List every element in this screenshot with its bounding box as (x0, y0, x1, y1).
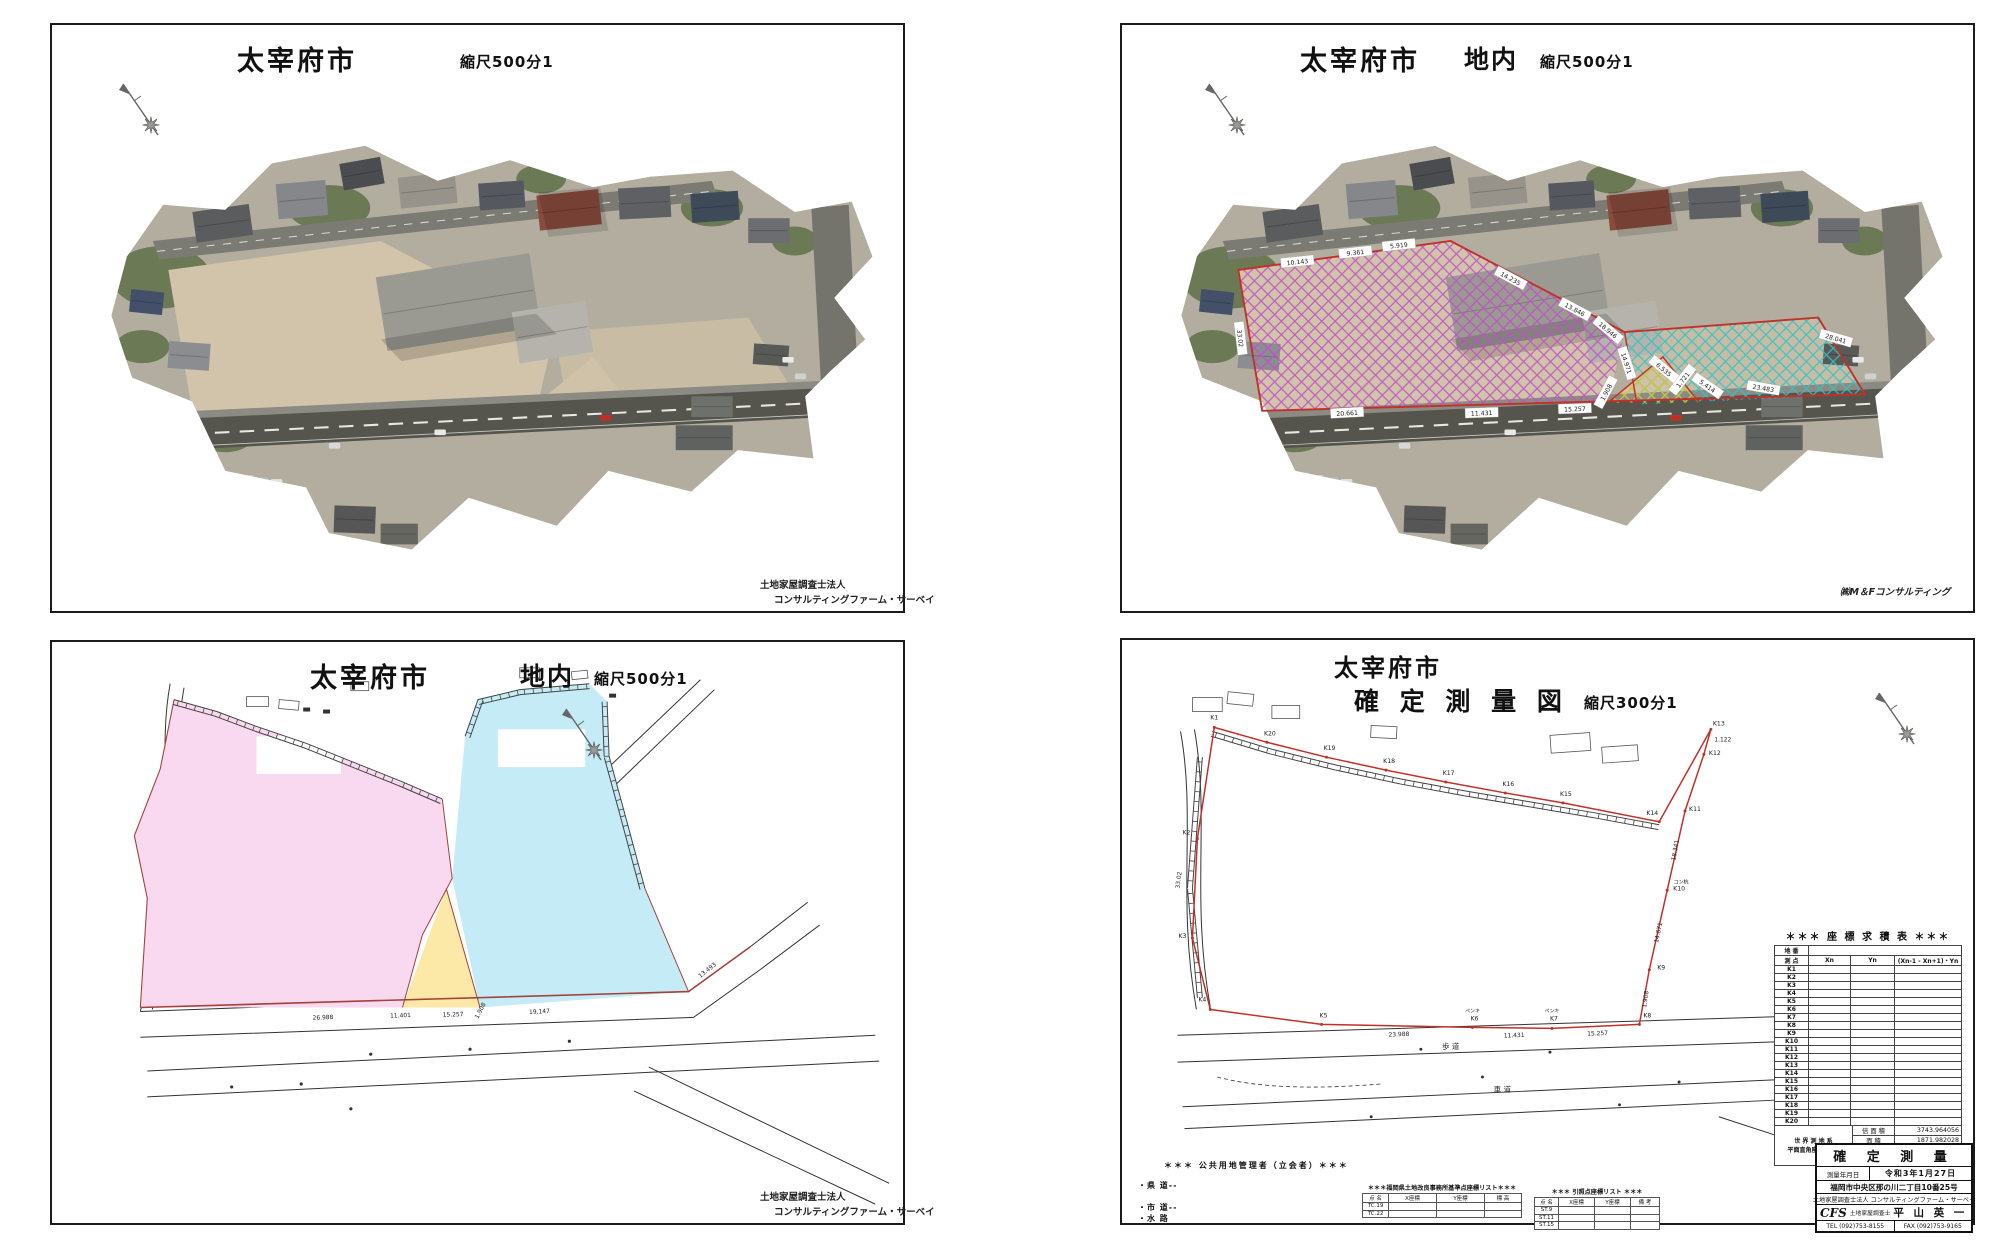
ref-value-cell (1485, 1203, 1522, 1211)
point-id-cell: K15 (1775, 1078, 1809, 1086)
summary-label: 倍 面 積 (1853, 1126, 1895, 1136)
point-id-cell: K5 (1775, 998, 1809, 1006)
panel2-title: 太宰府市 (1300, 39, 1420, 78)
survey-sheet-page: 太宰府市 縮尺500分1 土地家屋調査士法人 コンサルティングファーム・サーベイ… (0, 0, 2000, 1240)
panel4-title: 太宰府市 (1334, 648, 1442, 683)
coord-value-cell (1851, 1006, 1895, 1014)
survey-point-label: K19 (1324, 745, 1336, 752)
coord-value-cell (1809, 966, 1851, 974)
survey-date-value: 令和3年1月27日 (1870, 1167, 1971, 1180)
ref-value-cell (1437, 1210, 1485, 1218)
point-id-cell: K6 (1775, 1006, 1809, 1014)
ref-value-cell (1559, 1214, 1595, 1222)
coord-value-cell (1809, 982, 1851, 990)
coordinate-table: ＊＊＊ 座 標 求 積 表 ＊＊＊ 地 番 測 点 Xn Yn (Xn-1 - … (1774, 928, 1962, 1166)
survey-point-label: K6 (1471, 1015, 1479, 1022)
measurement-text: 1.122 (1714, 736, 1731, 743)
ref-value-cell (1485, 1210, 1522, 1218)
coord-value-cell (1809, 1086, 1851, 1094)
survey-point-label: K10 (1673, 885, 1685, 892)
road-name-label: 歩 道 (1442, 1041, 1460, 1051)
parcel-measurement-label: 20.661 (1330, 407, 1364, 419)
office-company: 土地家屋調査士法人 コンサルティングファーム・サーベイ (1817, 1194, 1971, 1205)
point-id-cell: K14 (1775, 1070, 1809, 1078)
panel-aerial-plain: 太宰府市 縮尺500分1 土地家屋調査士法人 コンサルティングファーム・サーベイ (50, 23, 905, 613)
coord-value-cell (1895, 1030, 1962, 1038)
surveyor-name: 平 山 英 一 (1893, 1205, 1967, 1220)
coord-value-cell (1809, 1062, 1851, 1070)
road-name-label: 車 道 (1494, 1084, 1512, 1094)
coord-value-cell (1851, 1022, 1895, 1030)
cfs-logo: CFS (1820, 1206, 1847, 1220)
legend-item-shido: ・市 道-- (1138, 1202, 1177, 1213)
measurement-text: 11.431 (1504, 1032, 1525, 1040)
survey-point-label: K3 (1179, 933, 1187, 940)
coord-value-cell (1851, 1062, 1895, 1070)
coord-table-row: K2 (1775, 974, 1962, 982)
coord-value-cell (1895, 1062, 1962, 1070)
point-id-cell: K13 (1775, 1062, 1809, 1070)
coord-value-cell (1895, 1110, 1962, 1118)
coord-table-row: K11 (1775, 1046, 1962, 1054)
panel3-subtitle: 地内 (520, 657, 574, 693)
coord-value-cell (1809, 990, 1851, 998)
benchmark-list-table: ＊＊＊福岡県土地改良事務所基準点座標リスト＊＊＊ 点 名X座標Y座標標 高TC.… (1362, 1183, 1522, 1218)
coord-value-cell (1895, 1038, 1962, 1046)
coord-value-cell (1851, 1070, 1895, 1078)
survey-point-label: K5 (1320, 1012, 1328, 1019)
north-arrow-icon (557, 702, 609, 766)
ref-table-header: 点 名X座標Y座標備 考 (1535, 1198, 1660, 1207)
summary-row: 世 界 測 地 系平面直角座標系Ⅱ系倍 面 積3743.964056 (1775, 1126, 1962, 1136)
ref-value-cell (1595, 1214, 1631, 1222)
survey-title-block: 確 定 測 量 測量年月日 令和3年1月27日 福岡市中央区那の川二丁目10番2… (1815, 1143, 1973, 1233)
coord-value-cell (1851, 974, 1895, 982)
coord-value-cell (1851, 966, 1895, 974)
coord-value-cell (1895, 974, 1962, 982)
marker-type-label: コン杭 (1674, 878, 1689, 885)
title-block-heading: 確 定 測 量 (1817, 1145, 1971, 1167)
coord-value-cell (1851, 1086, 1895, 1094)
ref-col-header: 標 高 (1485, 1194, 1522, 1203)
coord-table-row: K12 (1775, 1054, 1962, 1062)
coord-table-row: K13 (1775, 1062, 1962, 1070)
measurement-text: 11.401 (390, 1012, 411, 1020)
ref-point-cell: ST.15 (1535, 1222, 1559, 1230)
ref-point-cell: TC.19 (1363, 1203, 1389, 1211)
credit-line2: コンサルティングファーム・サーベイ (760, 1205, 935, 1220)
office-address: 福岡市中央区那の川二丁目10番25号 (1817, 1181, 1971, 1194)
coord-value-cell (1851, 1030, 1895, 1038)
point-id-cell: K8 (1775, 1022, 1809, 1030)
coord-value-cell (1851, 998, 1895, 1006)
road-marks-layer (230, 1040, 571, 1111)
ref-value-cell (1595, 1222, 1631, 1230)
summary-value: 3743.964056 (1895, 1126, 1962, 1136)
coord-value-cell (1809, 998, 1851, 1006)
survey-point-label: K4 (1198, 997, 1206, 1004)
credit-line2: コンサルティングファーム・サーベイ (760, 593, 935, 608)
point-id-cell: K9 (1775, 1030, 1809, 1038)
north-arrow-icon (1870, 686, 1922, 750)
measurement-text: 26.988 (313, 1014, 334, 1022)
ref-point-cell: ST.9 (1535, 1207, 1559, 1215)
ref-table-row: ST.15 (1535, 1222, 1660, 1230)
panel3-title: 太宰府市 (310, 656, 430, 695)
tel-number: TEL (092)753-8155 (1817, 1221, 1895, 1231)
coord-value-cell (1809, 1094, 1851, 1102)
coord-value-cell (1851, 1014, 1895, 1022)
ref-col-header: X座標 (1559, 1198, 1595, 1207)
measurement-text: 18.341 (1670, 839, 1681, 861)
ref-value-cell (1631, 1207, 1660, 1215)
coord-value-cell (1851, 1094, 1895, 1102)
panel-aerial-parcels: 太宰府市 地内 縮尺500分1 10.1439.3615.91914.23513… (1120, 23, 1975, 613)
measurement-text: 33.02 (1175, 871, 1184, 889)
coord-value-cell (1851, 1046, 1895, 1054)
point-id-cell: K4 (1775, 990, 1809, 998)
parcels-layer (134, 684, 750, 1008)
point-id-cell: K10 (1775, 1038, 1809, 1046)
coord-table-row: K5 (1775, 998, 1962, 1006)
coord-value-cell (1895, 1070, 1962, 1078)
panel-parcel-linemap: 26.98811.40115.2571.90819.14713.493 太宰府市… (50, 640, 905, 1225)
legend-header: ＊＊＊ 公共用地管理者（立会者）＊＊＊ (1164, 1160, 1349, 1171)
measurement-text: 15.257 (443, 1011, 464, 1019)
coord-table-row: K4 (1775, 990, 1962, 998)
reference-point-title: ＊＊＊ 引照点座標リスト ＊＊＊ (1534, 1187, 1660, 1196)
coordinate-table-title: ＊＊＊ 座 標 求 積 表 ＊＊＊ (1774, 928, 1962, 943)
ref-col-header: Y座標 (1437, 1194, 1485, 1203)
survey-point-label: K14 (1646, 810, 1658, 817)
coord-value-cell (1895, 998, 1962, 1006)
coord-value-cell (1809, 1030, 1851, 1038)
panel-confirmed-survey: K1K20K19K18K17K16K15K14K13K12K11K10K9K8K… (1120, 638, 1975, 1225)
credit-line1: ㈱M＆Fコンサルティング (1840, 585, 1950, 600)
coord-value-cell (1809, 974, 1851, 982)
survey-point-label: K2 (1183, 830, 1191, 837)
ref-value-cell (1389, 1210, 1437, 1218)
coord-value-cell (1809, 1110, 1851, 1118)
row-label-chiban: 地 番 (1775, 946, 1809, 956)
wall-hatch-layer (1187, 731, 1659, 998)
coord-value-cell (1895, 1006, 1962, 1014)
point-id-cell: K7 (1775, 1014, 1809, 1022)
panel4-scale: 縮尺300分1 (1584, 692, 1678, 713)
coord-table-row: K15 (1775, 1078, 1962, 1086)
aerial-photo-svg: 10.1439.3615.91914.23513.84618.94614.971… (1140, 83, 1958, 575)
coord-value-cell (1895, 982, 1962, 990)
coord-table-row: K6 (1775, 1006, 1962, 1014)
parcel-measurement-label: 15.257 (1558, 403, 1591, 414)
measurement-text: 11.431 (1471, 410, 1493, 418)
marker-type-label: ペンキ (1545, 1008, 1560, 1014)
coord-value-cell (1851, 982, 1895, 990)
public-land-legend: ＊＊＊ 公共用地管理者（立会者）＊＊＊ (1164, 1160, 1349, 1171)
survey-point-label: K9 (1657, 965, 1665, 972)
coord-table-row: K16 (1775, 1086, 1962, 1094)
point-id-cell: K1 (1775, 966, 1809, 974)
north-arrow-svg (557, 702, 609, 766)
aerial-photo-layer (70, 86, 888, 573)
point-id-cell: K18 (1775, 1102, 1809, 1110)
ref-value-cell (1595, 1207, 1631, 1215)
coord-value-cell (1895, 990, 1962, 998)
survey-point-label: K17 (1443, 770, 1455, 777)
ref-value-cell (1631, 1222, 1660, 1230)
ref-table-header: 点 名X座標Y座標標 高 (1363, 1194, 1522, 1203)
parcel-measurement-label: 11.431 (1465, 407, 1498, 418)
measurement-text: 15.257 (1564, 406, 1586, 414)
panel4-subtitle: 確 定 測 量 図 (1354, 682, 1568, 718)
survey-point-label: K1 (1210, 714, 1218, 721)
survey-point-label: K12 (1709, 750, 1721, 757)
row-label-sokuten: 測 点 (1775, 956, 1809, 966)
legend-item-kendo: ・県 道-- (1138, 1180, 1177, 1191)
point-id-cell: K11 (1775, 1046, 1809, 1054)
aerial-photo-overlay: 10.1439.3615.91914.23513.84618.94614.971… (1140, 83, 1958, 575)
road-marks-layer (1370, 1048, 1681, 1119)
coord-table-row: K9 (1775, 1030, 1962, 1038)
coord-value-cell (1809, 1022, 1851, 1030)
surveyor-label: 土地家屋調査士 (1850, 1208, 1891, 1217)
coord-value-cell (1895, 1046, 1962, 1054)
north-arrow-svg (1870, 686, 1922, 750)
ref-value-cell (1559, 1207, 1595, 1215)
coordinate-table-grid: 地 番 測 点 Xn Yn (Xn-1 - Xn+1)・Yn K1K2K3K4K… (1774, 945, 1962, 1126)
ref-col-header: X座標 (1389, 1194, 1437, 1203)
coord-value-cell (1895, 1054, 1962, 1062)
survey-point-label: K8 (1643, 1012, 1651, 1019)
coord-value-cell (1851, 990, 1895, 998)
coord-table-row: K19 (1775, 1110, 1962, 1118)
ref-table-row: TC.22 (1363, 1210, 1522, 1218)
coord-value-cell (1809, 1014, 1851, 1022)
coord-value-cell (1895, 1078, 1962, 1086)
coord-value-cell (1895, 966, 1962, 974)
ref-point-cell: TC.22 (1363, 1210, 1389, 1218)
coord-value-cell (1809, 1102, 1851, 1110)
coord-table-row: K14 (1775, 1070, 1962, 1078)
survey-point-label: K7 (1550, 1015, 1558, 1022)
fax-number: FAX (092)753-9165 (1895, 1221, 1972, 1231)
panel1-scale: 縮尺500分1 (460, 51, 554, 72)
ref-point-cell: ST.11 (1535, 1214, 1559, 1222)
marker-type-label: ペンキ (1465, 1008, 1480, 1014)
surveyor-credit: 土地家屋調査士法人 コンサルティングファーム・サーベイ (760, 1190, 935, 1220)
ref-value-cell (1631, 1214, 1660, 1222)
point-id-cell: K16 (1775, 1086, 1809, 1094)
coord-value-cell (1895, 1022, 1962, 1030)
coord-table-row: K8 (1775, 1022, 1962, 1030)
coord-table-row: K10 (1775, 1038, 1962, 1046)
coord-table-row: K1 (1775, 966, 1962, 974)
coord-value-cell (1895, 1102, 1962, 1110)
coord-table-row: K18 (1775, 1102, 1962, 1110)
credit-line1: 土地家屋調査士法人 (760, 578, 935, 593)
coord-value-cell (1809, 1054, 1851, 1062)
survey-point-label: K11 (1689, 806, 1701, 813)
coord-value-cell (1895, 1014, 1962, 1022)
coord-value-cell (1809, 1006, 1851, 1014)
surveyor-credit: 土地家屋調査士法人 コンサルティングファーム・サーベイ (760, 578, 935, 608)
coord-value-cell (1851, 1038, 1895, 1046)
ref-value-cell (1559, 1222, 1595, 1230)
point-id-cell: K2 (1775, 974, 1809, 982)
ref-table-row: TC.19 (1363, 1203, 1522, 1211)
measurement-text: 20.661 (1336, 410, 1358, 418)
point-id-cell: K3 (1775, 982, 1809, 990)
credit-line1: 土地家屋調査士法人 (760, 1190, 935, 1205)
panel2-scale: 縮尺500分1 (1540, 51, 1634, 72)
measurement-text: 23.988 (1388, 1031, 1409, 1039)
point-id-cell: K17 (1775, 1094, 1809, 1102)
ref-col-header: 点 名 (1535, 1198, 1559, 1207)
parcel-map-svg: 26.98811.40115.2571.90819.14713.493 (52, 642, 903, 1223)
coord-value-cell (1851, 1054, 1895, 1062)
coord-value-cell (1809, 1046, 1851, 1054)
survey-point-label: K18 (1383, 758, 1395, 765)
surveyor-credit: ㈱M＆Fコンサルティング (1840, 585, 1950, 600)
reference-point-table: ＊＊＊ 引照点座標リスト ＊＊＊ 点 名X座標Y座標備 考ST.9ST.11ST… (1534, 1187, 1660, 1230)
legend-item-suiro: ・水 路 (1138, 1213, 1169, 1224)
coord-value-cell (1809, 1078, 1851, 1086)
measurement-text: 15.257 (1587, 1030, 1608, 1038)
ref-table-row: ST.11 (1535, 1214, 1660, 1222)
point-id-cell: K19 (1775, 1110, 1809, 1118)
survey-date-label: 測量年月日 (1817, 1167, 1870, 1180)
col-yn: Yn (1851, 956, 1895, 966)
ref-table-row: ST.9 (1535, 1207, 1660, 1215)
measurement-text: 14.671 (1653, 922, 1664, 944)
col-xn: Xn (1809, 956, 1851, 966)
ref-col-header: 備 考 (1631, 1198, 1660, 1207)
coord-value-cell (1895, 1086, 1962, 1094)
ref-value-cell (1437, 1203, 1485, 1211)
coord-value-cell (1809, 1070, 1851, 1078)
panel1-title: 太宰府市 (237, 39, 357, 78)
ref-col-header: 点 名 (1363, 1194, 1389, 1203)
panel2-subtitle: 地内 (1464, 40, 1518, 76)
panel3-scale: 縮尺500分1 (594, 668, 688, 689)
coord-value-cell (1895, 1094, 1962, 1102)
measurement-text: 19.147 (529, 1008, 550, 1016)
point-id-cell: K12 (1775, 1054, 1809, 1062)
survey-point-label: K15 (1560, 791, 1572, 798)
survey-point-label: K16 (1502, 781, 1514, 788)
coord-table-row: K7 (1775, 1014, 1962, 1022)
coord-value-cell (1851, 1110, 1895, 1118)
coord-table-row: K3 (1775, 982, 1962, 990)
survey-point-label: K20 (1264, 730, 1276, 737)
col-product: (Xn-1 - Xn+1)・Yn (1895, 956, 1962, 966)
aerial-photo (70, 83, 888, 575)
coord-value-cell (1851, 1078, 1895, 1086)
coord-table-row: K17 (1775, 1094, 1962, 1102)
ref-col-header: Y座標 (1595, 1198, 1631, 1207)
ref-value-cell (1389, 1203, 1437, 1211)
aerial-photo-svg (70, 83, 888, 575)
coord-value-cell (1809, 1038, 1851, 1046)
survey-point-label: K13 (1713, 720, 1725, 727)
benchmark-list-title: ＊＊＊福岡県土地改良事務所基準点座標リスト＊＊＊ (1362, 1183, 1522, 1192)
measurement-text: 1.908 (1641, 990, 1650, 1008)
coord-value-cell (1851, 1102, 1895, 1110)
